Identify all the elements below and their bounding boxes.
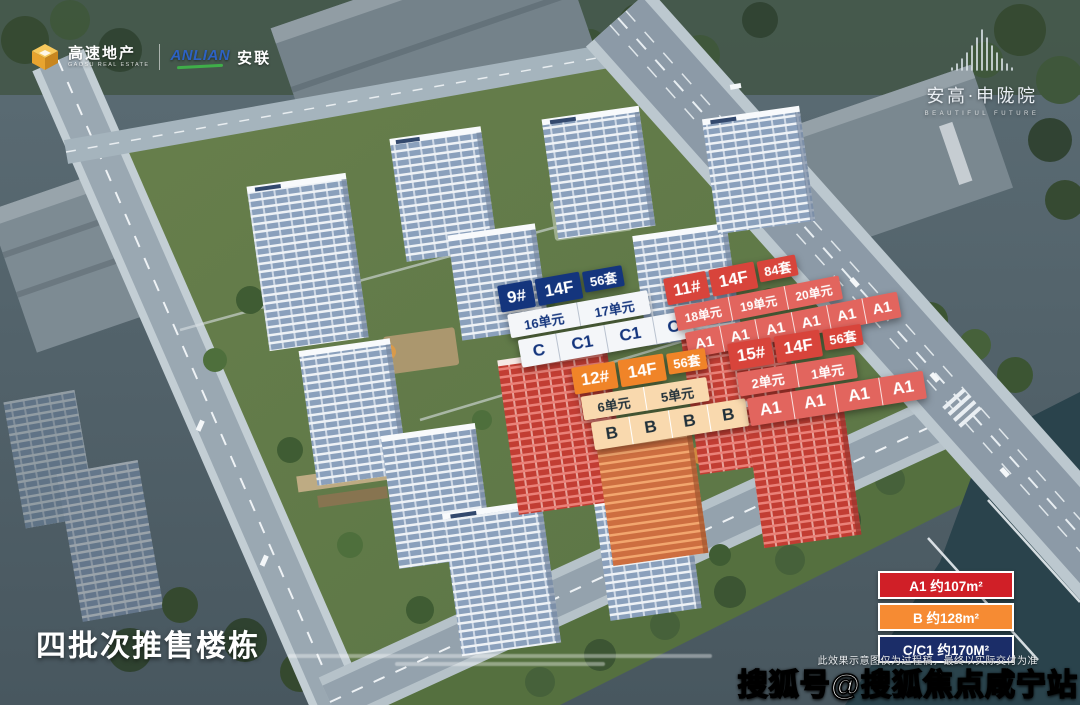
fine-print-text (288, 654, 712, 666)
type-cell: B (591, 417, 633, 451)
unit-count-tag: 84套 (756, 254, 799, 282)
sohu-watermark: 搜狐号@搜狐焦点咸宁站 (738, 660, 1078, 704)
logo-divider (159, 44, 160, 70)
legend-item-a1: A1 约107m² (878, 571, 1014, 599)
anlian-swoosh-icon (177, 64, 223, 69)
unit-count-tag: 56套 (582, 265, 625, 293)
gaosu-name-en: GAOSU REAL ESTATE (68, 62, 149, 68)
anlian-name-en: ANLIAN (170, 47, 230, 64)
project-logo: 安高·申陇院 BEAUTIFUL FUTURE (902, 26, 1062, 117)
developer-logos: 高速地产 GAOSU REAL ESTATE ANLIAN 安联 (30, 42, 271, 72)
aerial-masterplan-poster: 高速地产 GAOSU REAL ESTATE ANLIAN 安联 安高· (0, 0, 1080, 705)
crown-building-icon (944, 26, 1020, 78)
project-tagline: BEAUTIFUL FUTURE (902, 111, 1062, 117)
floors-tag: 14F (774, 330, 823, 364)
building-number-tag: 12# (571, 361, 619, 395)
floors-tag: 14F (618, 354, 667, 388)
legend-item-b: B 约128m² (878, 603, 1014, 631)
unit-count-tag: 56套 (666, 348, 708, 375)
gaosu-cube-icon (30, 42, 60, 72)
project-name: 安高·申陇院 (902, 82, 1062, 108)
unit-count-tag: 56套 (822, 324, 864, 351)
building-number-tag: 9# (497, 280, 536, 313)
gaosu-name-cn: 高速地产 (68, 46, 149, 63)
anlian-logo: ANLIAN 安联 (170, 47, 271, 68)
building-number-tag: 15# (727, 337, 775, 371)
batch-title: 四批次推售楼栋 (36, 621, 260, 665)
anlian-name-cn: 安联 (237, 47, 271, 68)
